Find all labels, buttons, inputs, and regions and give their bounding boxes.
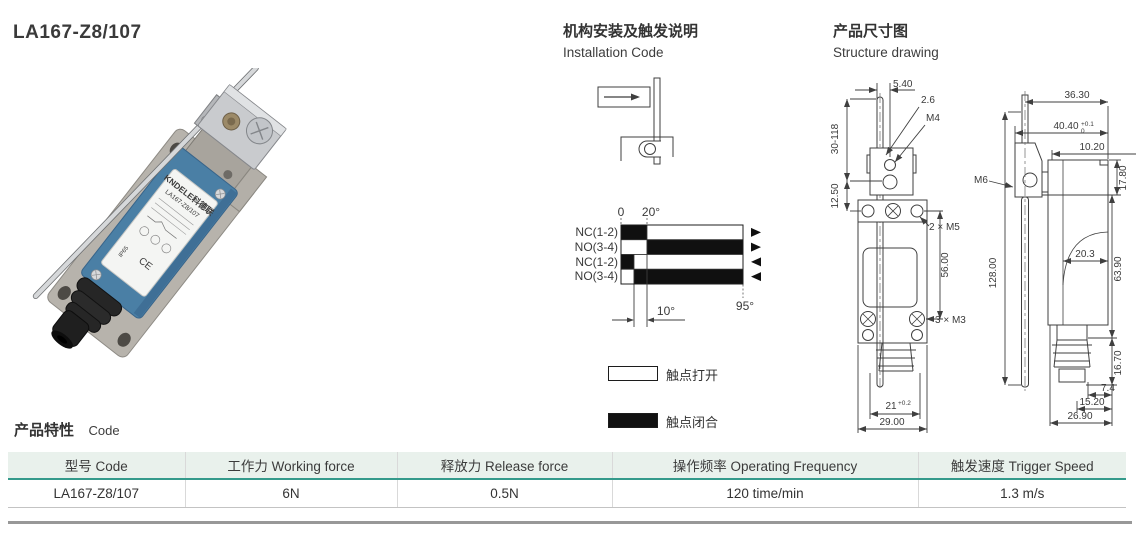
dim-head-depth: 12.50	[830, 183, 841, 208]
dim-lever-length: 128.00	[988, 257, 999, 288]
return-arrow-icon	[751, 257, 761, 266]
legend-open-label: 触点打开	[666, 365, 718, 384]
col-header-working-force: 工作力 Working force	[185, 452, 397, 479]
timing-row-label: NO(3-4)	[575, 240, 618, 254]
structure-title-en: Structure drawing	[833, 45, 939, 60]
side-view-drawing: 128.00 36.30 40.40 +0.1 0 10.20 17.80 M6…	[958, 73, 1140, 443]
col-header-code: 型号 Code	[8, 452, 185, 479]
col-header-trigger-speed: 触发速度 Trigger Speed	[918, 452, 1126, 479]
timing-row-label: NC(1-2)	[575, 225, 618, 239]
installation-title-zh: 机构安装及触发说明	[563, 20, 698, 41]
dim-body-width: 20.3	[1075, 249, 1095, 260]
dim-mount-spacing: 56.00	[940, 252, 951, 277]
page-bottom-rule	[8, 521, 1132, 524]
return-arrow-icon	[751, 272, 761, 281]
dim-top-width: 36.30	[1064, 90, 1089, 101]
datasheet-page: LA167-Z8/107 KNDELE科德联 LA167-Z8/107	[0, 0, 1140, 540]
dim-rod-offset: 5.40	[893, 79, 913, 90]
dim-tip-c: 26.90	[1067, 411, 1092, 422]
installation-diagram	[558, 73, 693, 173]
product-photo: KNDELE科德联 LA167-Z8/107 IP65 CE	[5, 68, 315, 398]
characteristics-title-en: Code	[88, 423, 119, 438]
dim-bellows-height: 16.70	[1113, 350, 1124, 375]
forward-arrow-icon	[751, 228, 761, 237]
col-header-release-force: 释放力 Release force	[397, 452, 612, 479]
page-title: LA167-Z8/107	[13, 22, 142, 44]
tick-20: 20°	[642, 205, 660, 219]
forward-arrow-icon	[751, 243, 761, 252]
dim-base-width: 29.00	[879, 417, 904, 428]
pivot-hole	[645, 144, 656, 155]
dim-lever-range: 30-118	[830, 123, 841, 154]
installation-title-en: Installation Code	[563, 45, 664, 60]
timing-row-label: NO(3-4)	[575, 269, 618, 283]
dim-tip-b: 15.20	[1079, 397, 1104, 408]
legend-closed-label: 触点闭合	[666, 412, 718, 431]
dim-m6: M6	[974, 175, 988, 186]
legend-open-swatch	[608, 366, 658, 381]
cell-working-force: 6N	[185, 479, 397, 508]
dim-overall-tol-bottom: 0	[1081, 128, 1085, 135]
characteristics-heading: 产品特性 Code	[14, 419, 120, 440]
head-side-profile	[1015, 143, 1042, 197]
dim-m5: 2 × M5	[929, 222, 960, 233]
col-header-operating-frequency: 操作频率 Operating Frequency	[612, 452, 918, 479]
dim-slot-tol: +0.2	[898, 400, 911, 407]
characteristics-table: 型号 Code 工作力 Working force 释放力 Release fo…	[8, 452, 1126, 508]
cell-release-force: 0.5N	[397, 479, 612, 508]
dim-m4: M4	[926, 113, 940, 124]
table-row: LA167-Z8/107 6N 0.5N 120 time/min 1.3 m/…	[8, 479, 1126, 508]
tick-0: 0	[618, 205, 625, 219]
body-side-profile	[1048, 160, 1108, 325]
dim-overall-tol-top: +0.1	[1081, 121, 1094, 128]
legend-closed-swatch	[608, 413, 658, 428]
characteristics-title-zh: 产品特性	[14, 422, 74, 439]
dim-tip-a: 7.4	[1101, 383, 1115, 394]
cell-operating-frequency: 120 time/min	[612, 479, 918, 508]
cell-trigger-speed: 1.3 m/s	[918, 479, 1126, 508]
timing-row-label: NC(1-2)	[575, 255, 618, 269]
dim-head-height: 17.80	[1118, 165, 1129, 190]
differential-angle: 10°	[657, 304, 675, 318]
dim-offset: 10.20	[1079, 142, 1104, 153]
table-header-row: 型号 Code 工作力 Working force 释放力 Release fo…	[8, 452, 1126, 479]
dim-overall-width: 40.40	[1053, 121, 1078, 132]
structure-title-zh: 产品尺寸图	[833, 20, 908, 41]
dim-rod-dia: 2.6	[921, 95, 935, 106]
dim-body-height: 63.90	[1113, 256, 1124, 281]
timing-diagram: NC(1-2) NO(3-4) NC(1-2) NO(3-4) 0 20° 95…	[548, 196, 798, 336]
cell-code: LA167-Z8/107	[8, 479, 185, 508]
tick-95: 95°	[736, 299, 754, 313]
dim-slot-width: 21	[885, 401, 897, 412]
